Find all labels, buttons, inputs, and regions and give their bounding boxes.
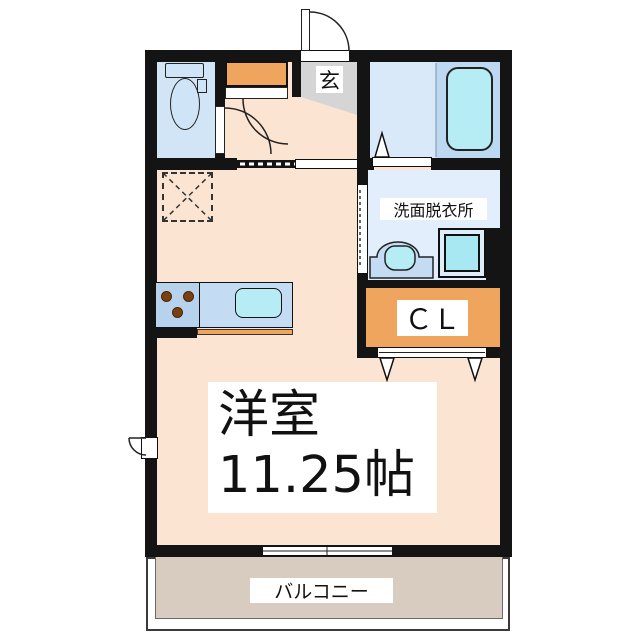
toilet-door-leaf <box>215 106 225 154</box>
closet-door-bar <box>377 347 487 358</box>
entrance-door-leaf <box>301 9 310 51</box>
entrance-label-text: 玄 <box>319 65 340 95</box>
balcony-label: バルコニー <box>250 578 393 603</box>
entrance-door-gap <box>301 50 349 62</box>
wall-washroom-bottom <box>357 280 500 288</box>
floorplan: 玄 洗面脱衣所 ＣＬ 洋室 11.25帖 バルコニー <box>0 0 640 640</box>
bathroom-floor <box>370 62 436 158</box>
shoe-cabinet <box>225 61 288 87</box>
left-wall-window <box>141 437 158 459</box>
wall-bath-bottom <box>431 158 500 170</box>
wall-toilet-right-1 <box>215 62 225 106</box>
wall-entrance-left <box>292 62 301 97</box>
stove-icon <box>155 282 200 328</box>
toilet-bowl-icon <box>170 78 200 130</box>
burner-dot-3 <box>172 307 183 318</box>
shelf-door-strip <box>225 87 288 99</box>
entrance-label: 玄 <box>316 66 343 93</box>
balcony-window <box>263 546 392 556</box>
washroom-label-text: 洗面脱衣所 <box>393 197 473 221</box>
main-room-name: 洋室 <box>218 386 415 446</box>
bathroom-door-strip <box>372 157 432 167</box>
toilet-tank <box>165 63 204 78</box>
hall-sliding-door-panel <box>295 159 358 169</box>
burner-dot-2 <box>183 291 194 302</box>
bathtub-icon <box>446 67 493 151</box>
wall-washer-block <box>486 228 500 280</box>
wall-washroom-left-1 <box>357 170 368 184</box>
main-room-label-lines: 洋室 11.25帖 <box>218 386 415 506</box>
entrance-door-arc <box>310 12 349 51</box>
counter-edge-strip <box>197 329 293 335</box>
washroom-sliding-door <box>357 184 368 274</box>
closet-label-text: ＣＬ <box>404 298 460 338</box>
wall-toilet-right-2 <box>215 154 225 162</box>
main-room-size: 11.25帖 <box>218 446 415 506</box>
wall-closet-bottom-left <box>357 347 377 358</box>
closet-label: ＣＬ <box>397 300 468 336</box>
wall-kitchen-stub <box>145 328 197 338</box>
washing-machine-inner <box>444 234 480 272</box>
wall-closet-bottom-right <box>487 347 500 358</box>
balcony-label-text: バルコニー <box>274 577 369 604</box>
main-room-label: 洋室 11.25帖 <box>208 382 437 513</box>
washroom-label: 洗面脱衣所 <box>380 198 487 220</box>
kitchen-sink-icon <box>235 288 282 318</box>
hall-sliding-door-track <box>237 160 297 168</box>
wall-entrance-bath <box>357 50 370 158</box>
burner-dot-1 <box>161 291 172 302</box>
wall-right <box>500 50 512 557</box>
refrigerator-space-icon <box>162 172 213 222</box>
toilet-flush-button <box>197 79 207 93</box>
